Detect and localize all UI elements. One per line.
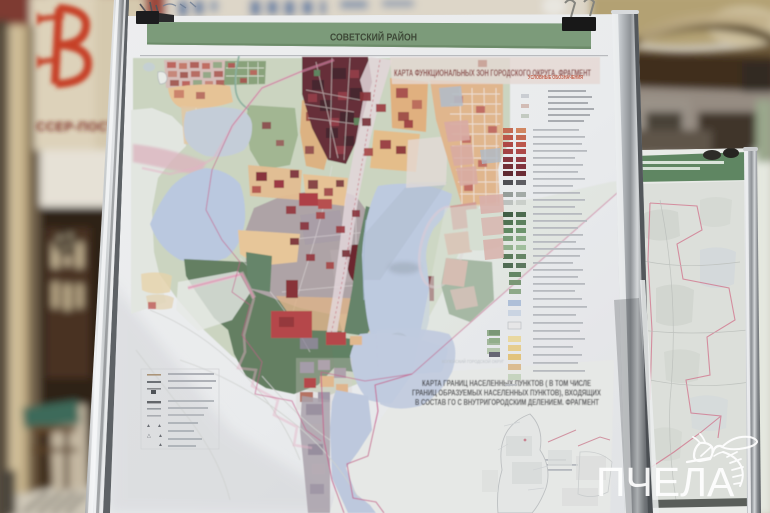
svg-text:ПЧЕЛА: ПЧЕЛА [596,459,735,505]
